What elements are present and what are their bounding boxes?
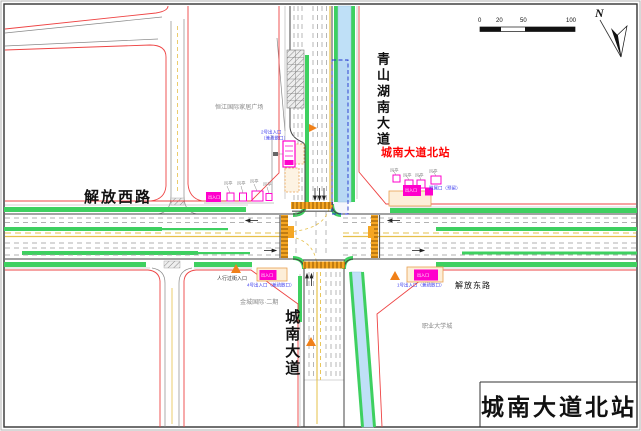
vent-label: 风亭 (250, 179, 258, 184)
entrance-box-text: 出入口 (405, 187, 417, 193)
station-name-marker: 城南大道北站 (381, 147, 450, 160)
secondary-roads (5, 17, 285, 427)
entrance-box-text: 出入口 (208, 194, 220, 200)
scale-tick-50: 50 (520, 17, 527, 24)
road-label-qingshan-south-avenue: 青山湖南大道 (374, 52, 389, 148)
station-site-plan: N 0 20 50 100 青山湖南大道 城南大道北站 解放西路 解放东路 城南… (0, 0, 641, 431)
entrance-box-text: 出入口 (417, 272, 429, 278)
scale-tick-100: 100 (566, 17, 576, 24)
building-label-southeast-campus: 职业大学城 (422, 323, 452, 330)
stop-lines (280, 211, 380, 260)
building-label-northwest-plaza: 恒江国际家居广场 (215, 104, 263, 111)
entrance-2-note-line2: （兼疏散口） (261, 136, 288, 141)
vent-label: 风亭 (390, 168, 398, 173)
reserved-entrance-note: 附属口（预留） (429, 186, 461, 191)
scale-bar (480, 27, 575, 32)
road-label-jiefang-west: 解放西路 (84, 189, 152, 206)
parking-bay (287, 50, 304, 108)
entrance-2-note-line1: 2号出入口 (261, 130, 282, 135)
vent-label: 风亭 (403, 173, 411, 178)
site-plan-linework (0, 0, 641, 431)
north-letter: N (595, 7, 604, 21)
entrance-box-text: 出入口 (261, 272, 273, 278)
center-lines (5, 6, 636, 424)
scale-tick-20: 20 (496, 17, 503, 24)
entrance-1-note: 1号出入口（兼疏散口） (397, 283, 445, 288)
road-label-chengnan-avenue: 城南大道 (283, 309, 300, 377)
vent-label: 风亭 (429, 169, 437, 174)
building-label-southwest-block: 金城国际·二期 (240, 299, 278, 306)
vent-label: 风亭 (237, 181, 245, 186)
vent-label: 风亭 (415, 173, 423, 178)
entrance-4-note: 4号出入口（兼疏散口） (247, 283, 295, 288)
drawing-title: 城南大道北站 (481, 383, 637, 427)
north-arrow (600, 20, 627, 57)
station-body-outline (332, 60, 348, 214)
road-label-jiefang-east: 解放东路 (455, 281, 491, 290)
vent-label: 风亭 (224, 181, 232, 186)
vent-label: 风亭 (263, 182, 271, 187)
pedestrian-crossing-label: 人行过街入口 (217, 276, 247, 282)
scale-tick-0: 0 (478, 17, 481, 24)
triangle-marker-east (390, 271, 400, 280)
triangle-marker-south (306, 337, 316, 346)
